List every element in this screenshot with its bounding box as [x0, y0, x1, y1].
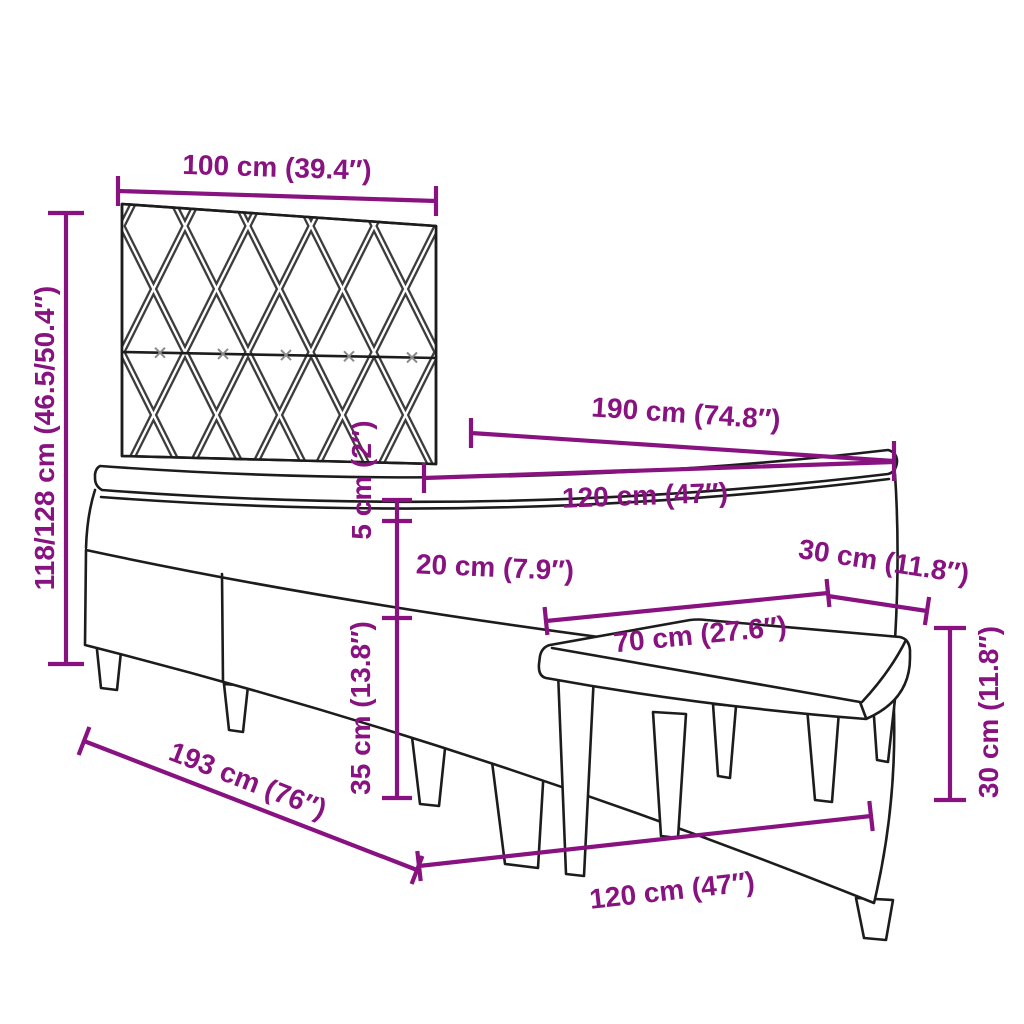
dim-mattress-width-label: 120 cm (47″)	[562, 477, 729, 514]
dim-bench-height-label: 30 cm (11.8″)	[973, 626, 1004, 798]
product-dimension-diagram: 100 cm (39.4″) 118/128 cm (46.5/50.4″) 1…	[0, 0, 1024, 1024]
bed-leg-rear-mid	[224, 684, 248, 732]
dim-base-height-label: 35 cm (13.8″)	[345, 621, 376, 795]
dim-headboard-width-label: 100 cm (39.4″)	[182, 149, 372, 186]
dim-topper-thickness-label: 5 cm (2″)	[346, 420, 377, 539]
headboard-pattern	[122, 204, 436, 464]
headboard	[122, 204, 436, 464]
base-front-seam	[222, 574, 223, 682]
dim-total-height-label: 118/128 cm (46.5/50.4″)	[29, 286, 60, 591]
